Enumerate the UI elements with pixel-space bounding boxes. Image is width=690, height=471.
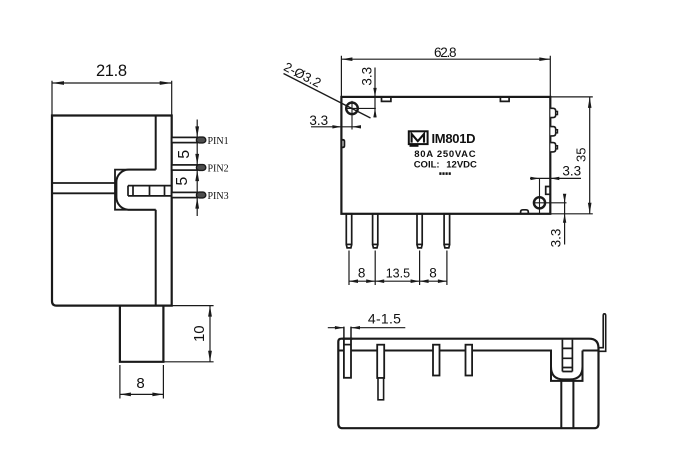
svg-text:2-Ø3.2: 2-Ø3.2 [281,59,323,90]
svg-text:12VDC: 12VDC [446,159,477,170]
svg-text:13.5: 13.5 [386,266,410,280]
svg-text:3.3: 3.3 [562,164,581,179]
svg-text:8: 8 [136,375,144,392]
svg-text:IM801D: IM801D [432,131,476,146]
svg-text:3.3: 3.3 [309,113,328,128]
svg-text:10: 10 [191,325,208,342]
svg-text:COIL:: COIL: [414,159,440,170]
svg-text:PIN3: PIN3 [208,191,229,202]
svg-text:3.3: 3.3 [360,67,375,86]
svg-text:5: 5 [174,177,191,186]
svg-text:PIN1: PIN1 [208,136,229,147]
svg-text:3.3: 3.3 [549,229,564,248]
svg-text:5: 5 [176,150,193,159]
svg-text:21.8: 21.8 [96,62,127,80]
svg-text:8: 8 [358,265,366,280]
svg-text:8: 8 [429,265,437,280]
svg-text:PIN2: PIN2 [208,163,229,174]
svg-text:62.8: 62.8 [434,45,457,60]
svg-text:35: 35 [574,148,589,162]
svg-text:4-1.5: 4-1.5 [368,310,401,326]
